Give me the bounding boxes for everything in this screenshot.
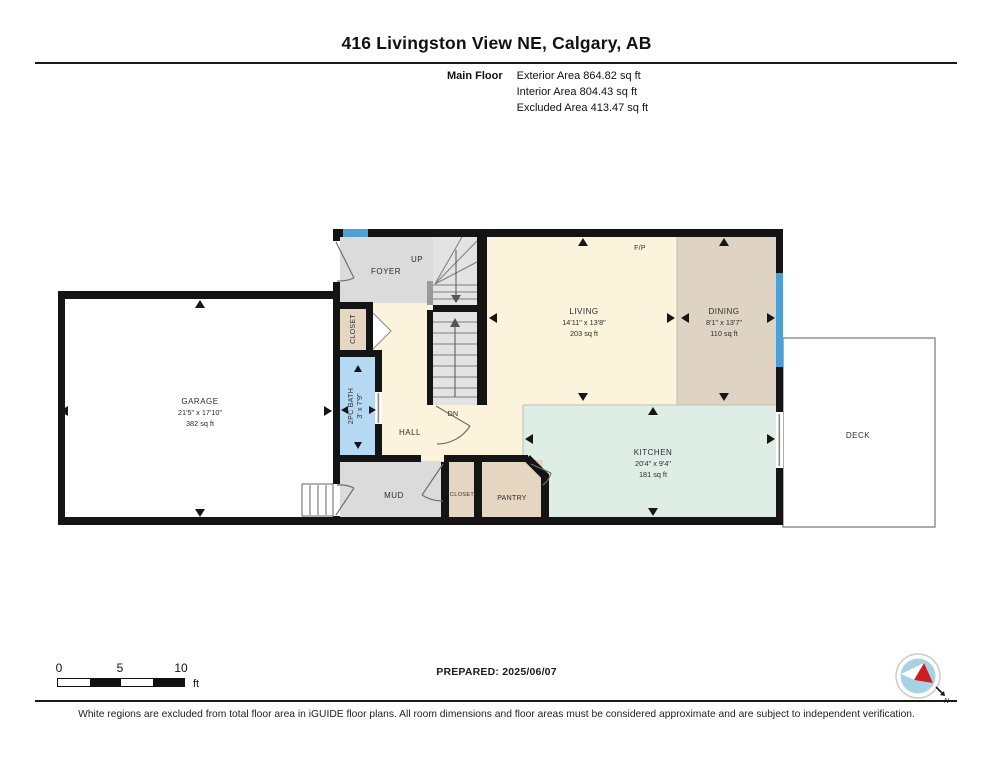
prepared-date: PREPARED: 2025/06/07: [0, 666, 993, 678]
garage-area: 382 sq ft: [186, 419, 214, 428]
living-label: LIVING: [569, 307, 598, 316]
up-label: UP: [411, 255, 423, 264]
room-deck: DECK: [783, 338, 935, 527]
dining-dims: 8'1" x 13'7": [706, 318, 742, 327]
kitchen-label: KITCHEN: [634, 448, 673, 457]
staircase-up: [427, 237, 477, 305]
compass-logo: N: [891, 650, 955, 706]
dn-label: DN: [448, 411, 459, 418]
mud-label: MUD: [384, 491, 404, 500]
foyer-window: [343, 229, 368, 237]
bath-label: 2PC BATH: [348, 388, 355, 424]
footer-divider: [35, 700, 957, 702]
disclaimer-text: White regions are excluded from total fl…: [0, 709, 993, 720]
bath-door: [375, 392, 382, 424]
fireplace-label: F/P: [634, 245, 646, 252]
kitchen-area: 181 sq ft: [639, 470, 667, 479]
scale-unit: ft: [193, 678, 199, 690]
floorplan-page: 416 Livingston View NE, Calgary, AB Main…: [0, 0, 993, 768]
dining-area: 110 sq ft: [710, 329, 737, 338]
kitchen-dims: 20'4" x 9'4": [635, 459, 671, 468]
patio-door: [776, 412, 783, 468]
pantry-label: PANTRY: [497, 495, 527, 502]
garage-label: GARAGE: [181, 397, 218, 406]
garage-dims: 21'5" x 17'10": [178, 408, 222, 417]
bath-dims: 3' x 7'9": [355, 393, 364, 419]
closet-mud-label: CLOSET: [450, 492, 474, 498]
living-area: 203 sq ft: [570, 329, 598, 338]
closet-foyer-label: CLOSET: [350, 314, 357, 344]
room-closet-mud-fill: [447, 461, 476, 520]
foyer-label: FOYER: [371, 267, 401, 276]
hall-label: HALL: [399, 428, 421, 437]
deck-label: DECK: [846, 431, 870, 440]
dining-label: DINING: [709, 307, 740, 316]
scale-bar-segments: [57, 678, 185, 687]
staircase-down: [433, 310, 477, 405]
dining-window: [776, 273, 783, 367]
floorplan-drawing: DECK: [0, 0, 993, 768]
garage-steps: [302, 484, 333, 516]
living-dims: 14'11" x 13'8": [562, 318, 606, 327]
